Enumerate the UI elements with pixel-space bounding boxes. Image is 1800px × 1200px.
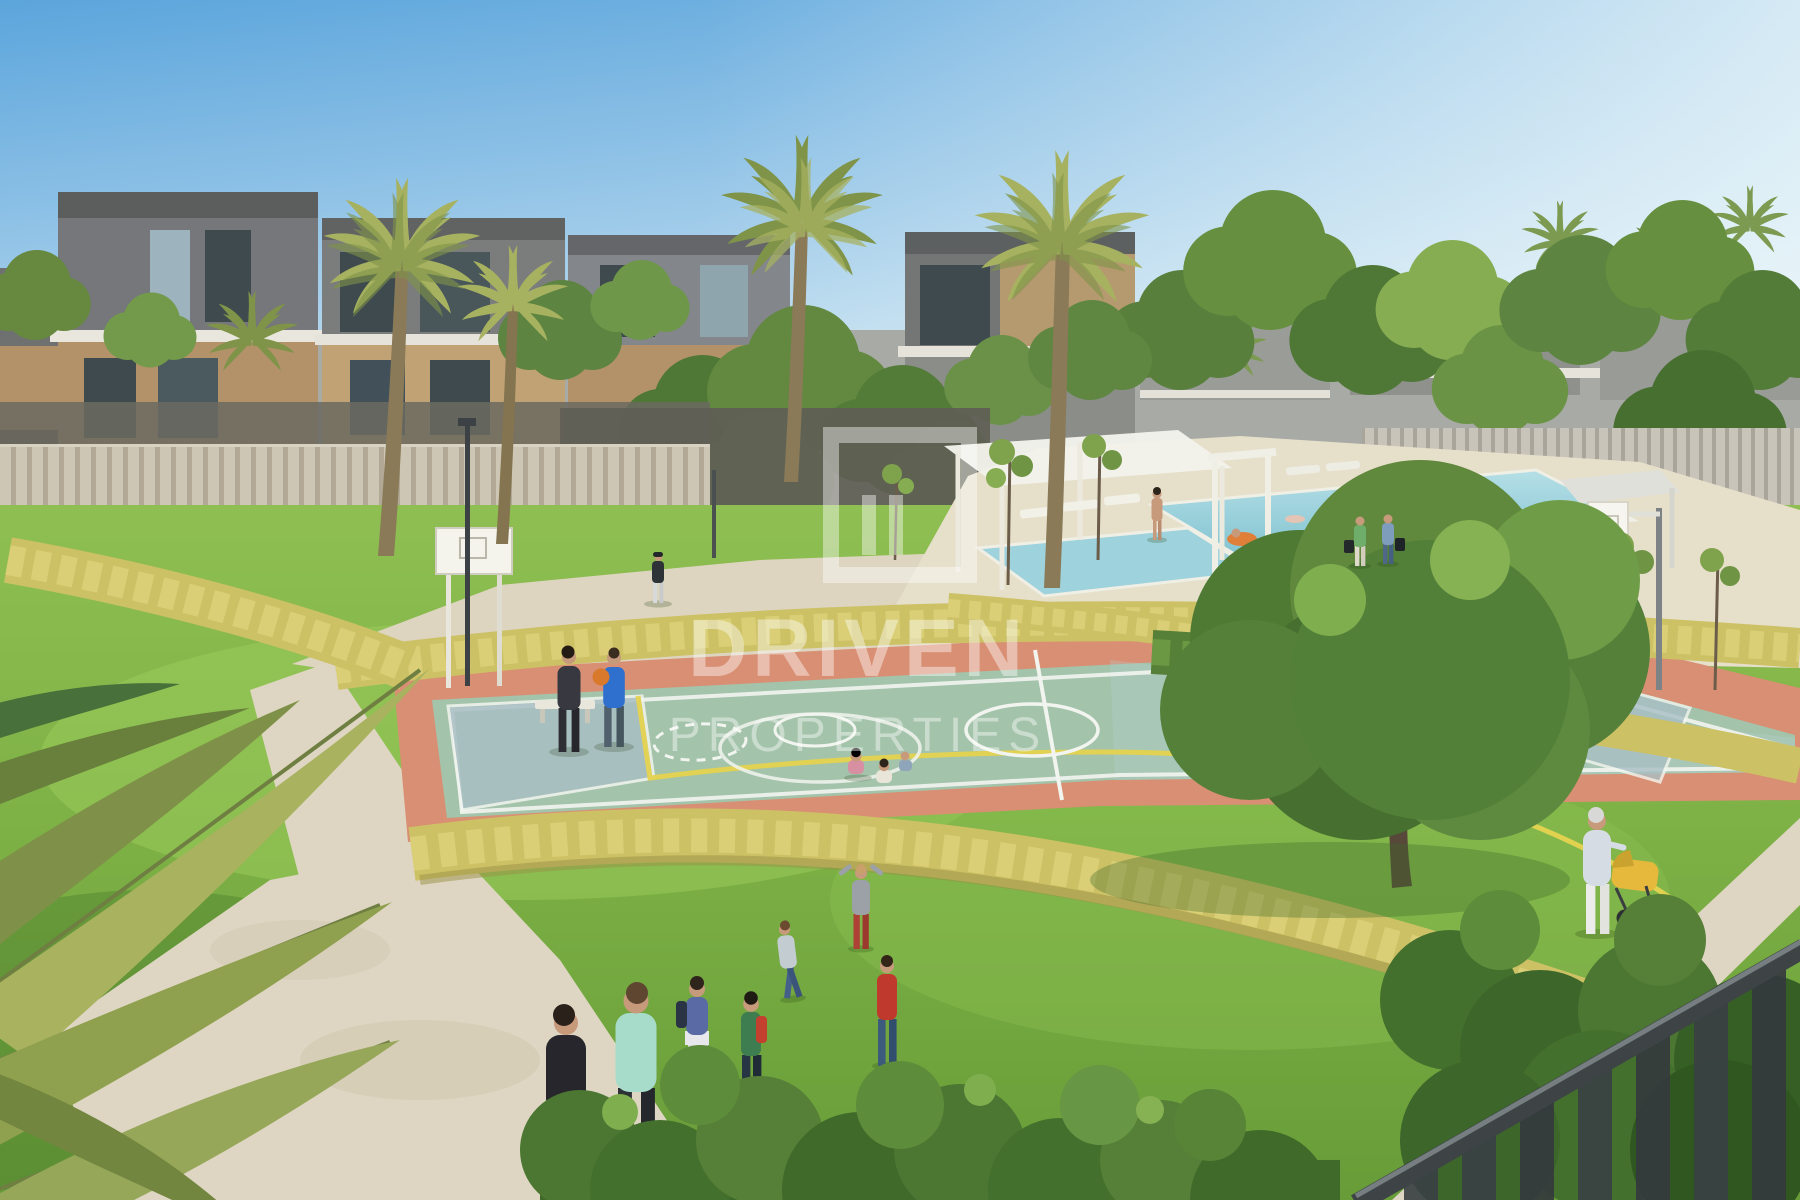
community-park-render: DRIVEN PROPERTIES: [0, 0, 1800, 1200]
scene-art: [0, 0, 1800, 1200]
